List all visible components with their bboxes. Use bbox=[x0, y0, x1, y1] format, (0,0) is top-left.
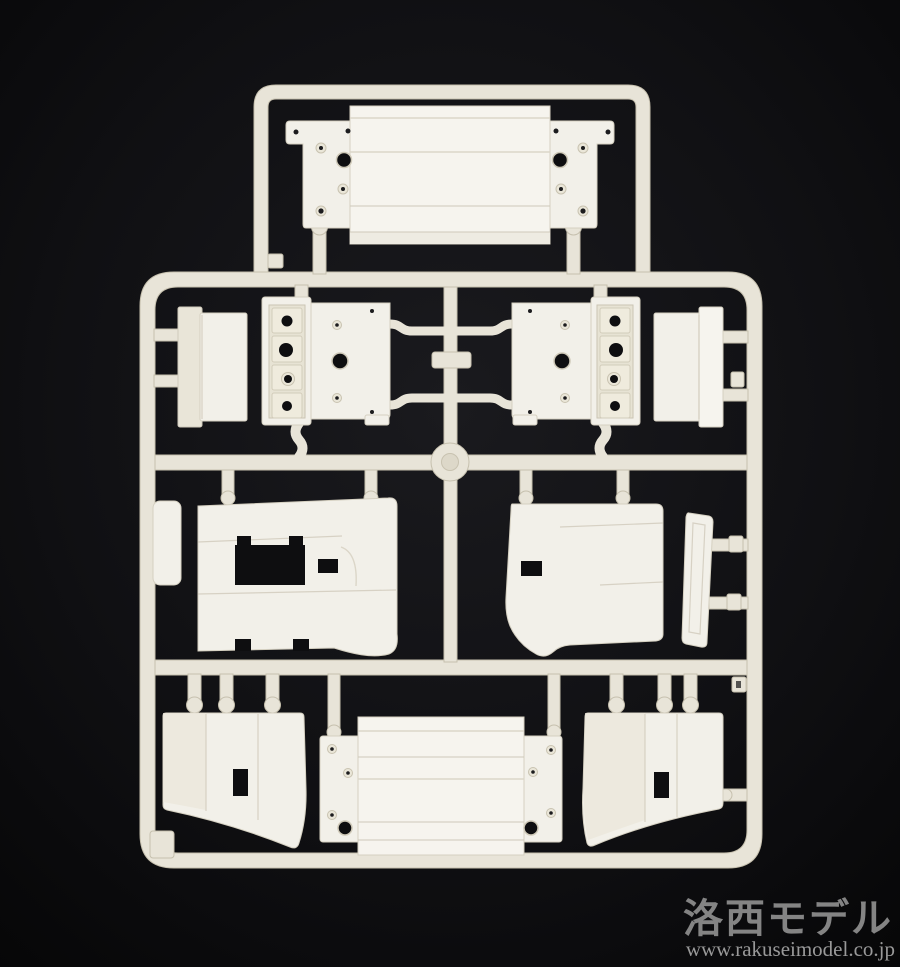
part-box-upper-right bbox=[654, 307, 723, 427]
part-floor-plate-bottom bbox=[320, 717, 562, 855]
part-side-panel-right bbox=[506, 504, 663, 656]
gate-stub bbox=[720, 331, 748, 343]
watermark: 洛西モデル www.rakuseimodel.co.jp bbox=[683, 896, 895, 961]
part-bracket-plate-left bbox=[262, 297, 390, 425]
gate-stub bbox=[720, 389, 748, 401]
injection-gate-mark bbox=[442, 454, 459, 471]
corner-step bbox=[150, 831, 174, 858]
gate-stub-wavy bbox=[600, 423, 607, 457]
watermark-brand-text: 洛西モデル bbox=[683, 896, 893, 942]
part-small-plate-left-rail bbox=[153, 501, 181, 585]
watermark-url-text: www.rakuseimodel.co.jp bbox=[686, 937, 895, 961]
rail-pad bbox=[729, 536, 743, 552]
gate-stub-wavy bbox=[296, 423, 303, 457]
runner-center-tab bbox=[432, 352, 471, 368]
rail-pad bbox=[731, 372, 744, 387]
part-side-panel-left bbox=[198, 498, 397, 656]
photo-canvas: 洛西モデル www.rakuseimodel.co.jp bbox=[0, 0, 900, 967]
part-bracket-plate-right bbox=[512, 297, 640, 425]
part-box-upper-left bbox=[178, 307, 247, 427]
runner-tab bbox=[268, 254, 283, 268]
part-roof-plate-top bbox=[286, 106, 614, 244]
pad-mark bbox=[736, 681, 741, 688]
rail-pad bbox=[727, 594, 741, 610]
